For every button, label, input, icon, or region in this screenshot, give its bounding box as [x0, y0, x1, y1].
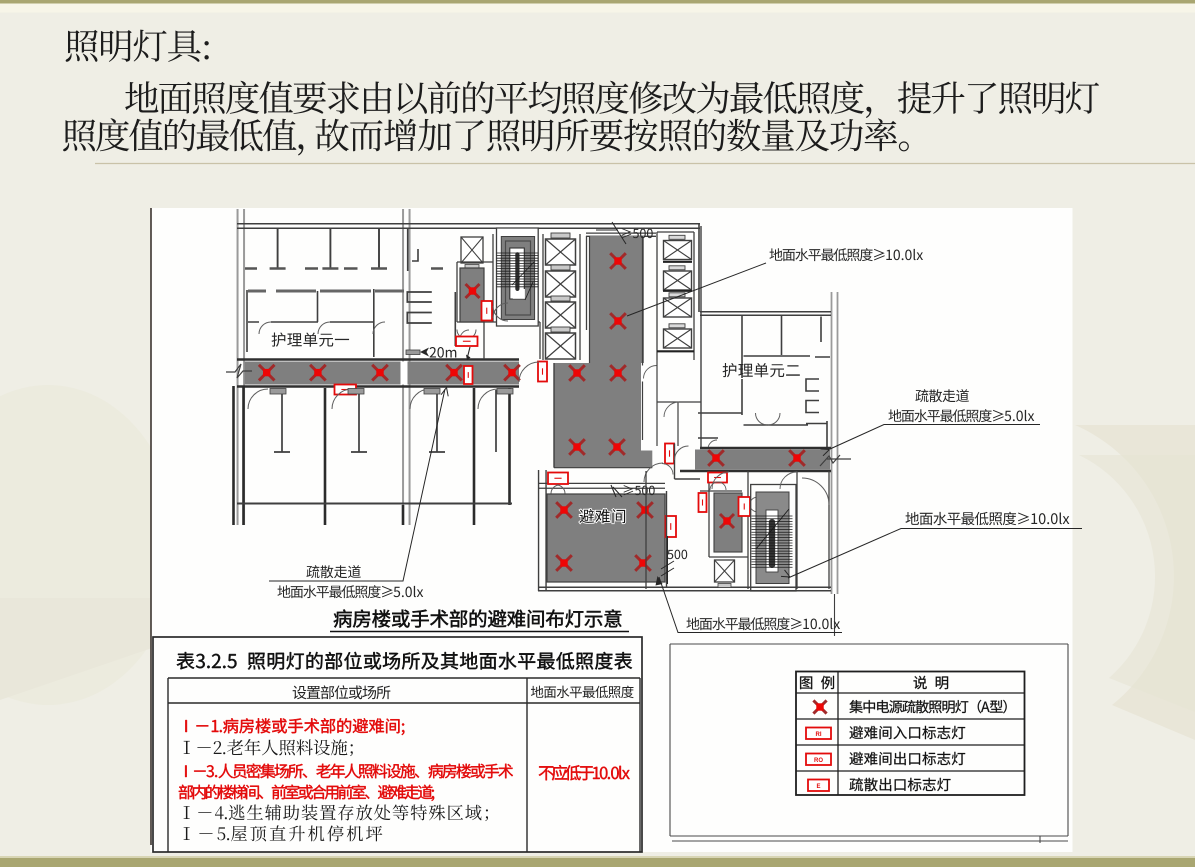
svg-text:RO: RO: [814, 758, 823, 764]
svg-text:E: E: [816, 784, 820, 790]
svg-text:RI: RI: [816, 732, 822, 738]
